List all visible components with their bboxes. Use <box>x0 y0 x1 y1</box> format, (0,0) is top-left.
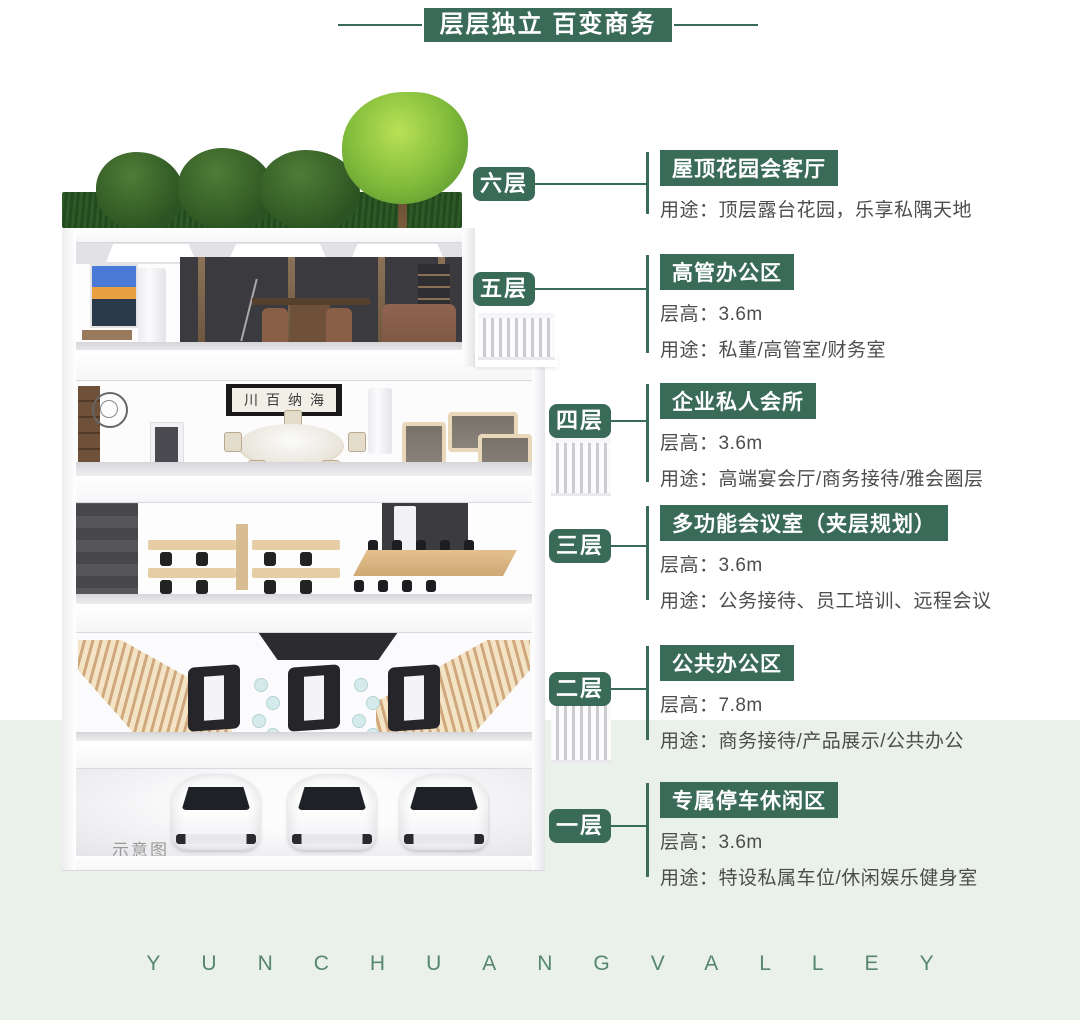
floor-description-3: 多功能会议室（夹层规划） 层高：3.6m 用途：公务接待、员工培训、远程会议 <box>660 505 992 613</box>
floor2-interior <box>76 632 532 741</box>
balcony-railing <box>551 438 611 493</box>
floor-badge-5: 五层 <box>473 272 535 306</box>
floor4-interior: 川百纳海 <box>76 380 532 476</box>
floor-description-4: 企业私人会所 层高：3.6m 用途：高端宴会厅/商务接待/雅会圈层 <box>660 383 984 491</box>
stool <box>266 696 280 710</box>
floor-title-3: 多功能会议室（夹层规划） <box>660 505 948 541</box>
task-chair <box>300 580 312 594</box>
task-chair <box>264 580 276 594</box>
conference-chair <box>378 580 388 592</box>
floor-badge-1: 一层 <box>549 809 611 843</box>
floor-height-3: 层高：3.6m <box>660 550 992 577</box>
connector-line <box>535 288 646 290</box>
floor-slab <box>62 604 545 632</box>
connector-line <box>535 183 646 185</box>
balcony-railing <box>551 700 611 760</box>
floor-slab <box>62 228 475 242</box>
display-table-top <box>404 675 424 720</box>
locker-wall <box>76 502 138 600</box>
floor3-floor <box>76 594 532 604</box>
floor2-floor <box>76 732 532 741</box>
connector-line-vertical <box>646 646 649 740</box>
banner-line-right <box>674 24 758 26</box>
work-desk <box>252 540 340 550</box>
tree-crown <box>342 92 468 204</box>
floor-description-6: 屋顶花园会客厅 用途：顶层露台花园，乐享私隅天地 <box>660 150 972 222</box>
connector-line-vertical <box>646 506 649 600</box>
stool <box>252 714 266 728</box>
floor5-interior <box>76 242 462 354</box>
floor-badge-6: 六层 <box>473 167 535 201</box>
floor-title-4: 企业私人会所 <box>660 383 816 419</box>
floor-usage-5: 用途：私董/高管室/财务室 <box>660 335 886 362</box>
building-left-wall <box>62 228 76 870</box>
connector-line-vertical <box>646 152 649 214</box>
floor-usage-1: 用途：特设私属车位/休闲娱乐健身室 <box>660 863 978 890</box>
floor-usage-6: 用途：顶层露台花园，乐享私隅天地 <box>660 195 972 222</box>
ceiling-feature <box>258 632 398 660</box>
floor-title-1: 专属停车休闲区 <box>660 782 838 818</box>
floor4-floor <box>76 462 532 476</box>
work-desk <box>148 540 236 550</box>
executive-desk <box>252 298 370 305</box>
connector-line <box>611 825 646 827</box>
balcony-railing <box>478 313 555 357</box>
work-desk <box>148 568 236 578</box>
floor-badge-2: 二层 <box>549 672 611 706</box>
stool <box>352 714 366 728</box>
display-table <box>188 664 240 732</box>
floor-description-1: 专属停车休闲区 层高：3.6m 用途：特设私属车位/休闲娱乐健身室 <box>660 782 978 890</box>
floor-height-4: 层高：3.6m <box>660 428 984 455</box>
display-table <box>388 664 440 732</box>
page-title: 层层独立 百变商务 <box>424 8 672 42</box>
stool <box>254 678 268 692</box>
floor-description-2: 公共办公区 层高：7.8m 用途：商务接待/产品展示/公共办公 <box>660 645 964 753</box>
floor-usage-3: 用途：公务接待、员工培训、远程会议 <box>660 586 992 613</box>
floor-badge-3: 三层 <box>549 529 611 563</box>
floor-slab <box>62 476 545 502</box>
conference-table <box>353 550 517 576</box>
brand-text: YUNCHUANGVALLEY <box>0 952 1080 976</box>
calligraphy-plaque: 川百纳海 <box>232 388 336 412</box>
white-car <box>172 774 260 850</box>
floor-badge-4: 四层 <box>549 404 611 438</box>
display-table-top <box>204 675 224 720</box>
floor-height-5: 层高：3.6m <box>660 299 886 326</box>
conference-chair <box>402 580 412 592</box>
floor-title-5: 高管办公区 <box>660 254 794 290</box>
connector-line-vertical <box>646 384 649 482</box>
work-desk <box>252 568 340 578</box>
floor-description-5: 高管办公区 层高：3.6m 用途：私董/高管室/财务室 <box>660 254 886 362</box>
floor-title-6: 屋顶花园会客厅 <box>660 150 838 186</box>
air-conditioner <box>138 268 166 346</box>
display-table <box>288 664 340 732</box>
stool <box>366 696 380 710</box>
air-conditioner <box>368 388 392 454</box>
task-chair <box>160 552 172 566</box>
wood-shelf-divider <box>236 524 248 590</box>
connector-line <box>611 545 646 547</box>
dining-chair <box>224 432 242 452</box>
floor3-interior <box>76 502 532 604</box>
connector-line-vertical <box>646 783 649 877</box>
task-chair <box>196 580 208 594</box>
wall-picture <box>90 264 138 328</box>
building-right-wall <box>532 367 545 870</box>
wire-art-sculpture-inner <box>100 400 118 418</box>
floor-title-2: 公共办公区 <box>660 645 794 681</box>
task-chair <box>264 552 276 566</box>
wall-wood-strip <box>198 257 205 345</box>
task-chair <box>300 552 312 566</box>
floor-height-2: 层高：7.8m <box>660 690 964 717</box>
roof-bush <box>96 152 184 230</box>
stool <box>354 678 368 692</box>
white-car <box>400 774 488 850</box>
floor-usage-2: 用途：商务接待/产品展示/公共办公 <box>660 726 964 753</box>
task-chair <box>196 552 208 566</box>
display-table-top <box>304 675 324 720</box>
base-slab <box>62 856 545 870</box>
banner-line-left <box>338 24 422 26</box>
connector-line-vertical <box>646 255 649 353</box>
connector-line <box>611 688 646 690</box>
wall-shelf <box>82 330 132 340</box>
floor-slab <box>62 741 545 768</box>
connector-line <box>611 420 646 422</box>
side-cabinet-front <box>155 427 178 464</box>
conference-chair <box>354 580 364 592</box>
floor-height-1: 层高：3.6m <box>660 827 978 854</box>
task-chair <box>160 580 172 594</box>
floor-usage-4: 用途：高端宴会厅/商务接待/雅会圈层 <box>660 464 984 491</box>
desk-base <box>290 305 330 345</box>
white-car <box>288 774 376 850</box>
dining-chair <box>348 432 366 452</box>
conference-chair <box>426 580 436 592</box>
